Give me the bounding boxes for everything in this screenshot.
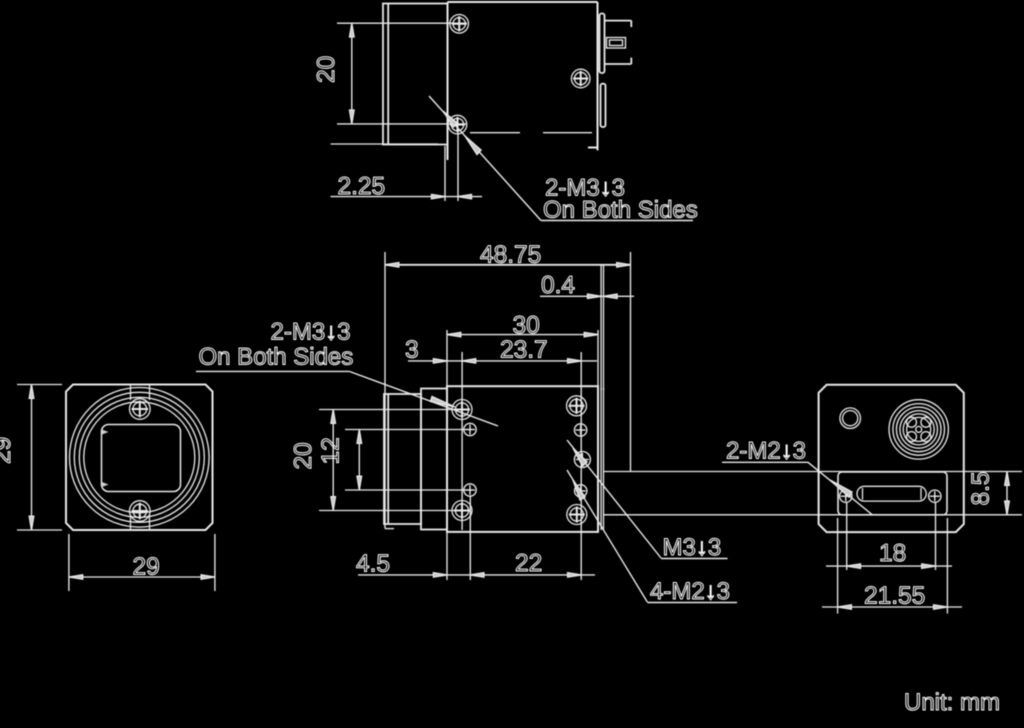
svg-text:On Both Sides: On Both Sides: [543, 197, 698, 224]
svg-text:4.5: 4.5: [356, 551, 390, 578]
svg-text:3: 3: [405, 337, 419, 364]
svg-text:On Both Sides: On Both Sides: [199, 344, 354, 371]
svg-text:2-M3↓3: 2-M3↓3: [271, 319, 351, 346]
svg-text:12: 12: [318, 437, 345, 464]
svg-text:30: 30: [513, 312, 540, 339]
svg-text:29: 29: [0, 437, 16, 464]
svg-text:2.25: 2.25: [338, 173, 386, 200]
svg-text:M3↓3: M3↓3: [663, 534, 722, 561]
svg-text:20: 20: [290, 442, 317, 469]
svg-text:8.5: 8.5: [968, 471, 995, 505]
svg-text:29: 29: [133, 554, 160, 581]
svg-text:Unit: mm: Unit: mm: [904, 689, 1000, 716]
svg-text:20: 20: [313, 56, 340, 83]
svg-text:0.4: 0.4: [541, 272, 575, 299]
svg-text:48.75: 48.75: [480, 242, 541, 269]
svg-text:23.7: 23.7: [500, 337, 548, 364]
svg-text:2-M2↓3: 2-M2↓3: [726, 438, 806, 465]
svg-text:22: 22: [515, 550, 542, 577]
svg-text:4-M2↓3: 4-M2↓3: [650, 578, 730, 605]
svg-text:21.55: 21.55: [864, 583, 925, 610]
svg-text:18: 18: [879, 540, 906, 567]
